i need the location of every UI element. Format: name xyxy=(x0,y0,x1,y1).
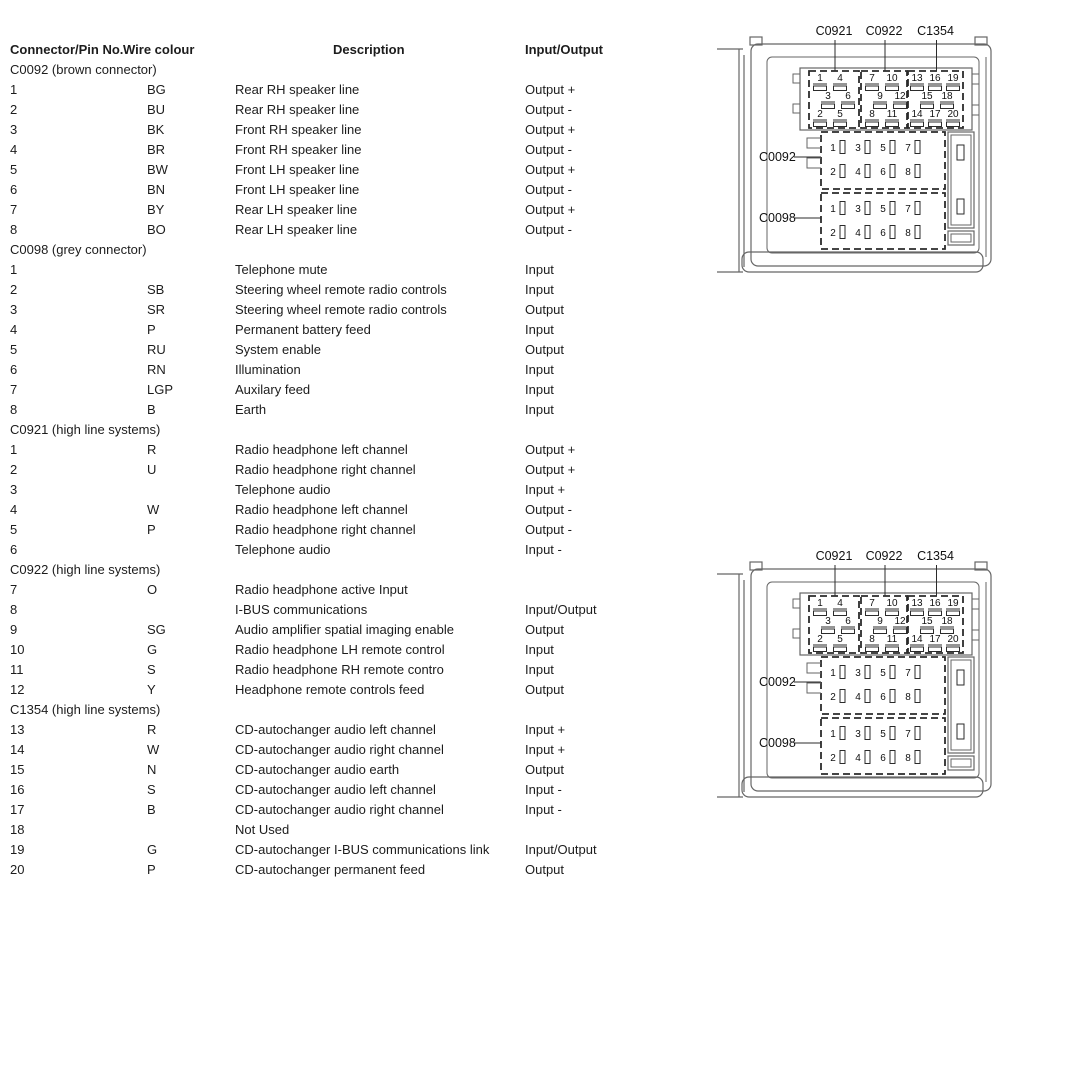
right-column-small-box-inner xyxy=(951,759,971,767)
wire-colour-cell: R xyxy=(147,440,156,460)
pin-number: 7 xyxy=(869,598,875,609)
description-cell: Front LH speaker line xyxy=(235,160,359,180)
input-output-cell: Input xyxy=(525,380,554,400)
pinout-table: Connector/Pin No.Wire colourDescriptionI… xyxy=(10,40,682,880)
pin-number: 5 xyxy=(880,143,886,154)
connector-label: C0092 xyxy=(759,675,796,689)
input-output-cell: Input xyxy=(525,400,554,420)
top-strip-left-notches xyxy=(793,74,800,113)
top-strip-left-notches xyxy=(793,599,800,638)
table-row: 6Telephone audioInput - xyxy=(10,540,682,560)
description-cell: CD-autochanger I-BUS communications link xyxy=(235,840,489,860)
connector-diagram-bottom: C0921143625C0922710912811C13541316191518… xyxy=(715,540,1079,812)
input-output-cell: Input - xyxy=(525,800,562,820)
input-output-cell: Output - xyxy=(525,500,572,520)
pin-number: 1 xyxy=(830,668,836,679)
description-cell: Telephone audio xyxy=(235,480,330,500)
description-cell: CD-autochanger audio right channel xyxy=(235,800,444,820)
pin-number: 6 xyxy=(880,167,886,178)
input-output-cell: Output xyxy=(525,860,564,880)
wire-colour-cell: BN xyxy=(147,180,165,200)
pin-slot xyxy=(840,202,845,215)
table-row: 9SGAudio amplifier spatial imaging enabl… xyxy=(10,620,682,640)
description-cell: Permanent battery feed xyxy=(235,320,371,340)
table-row: 16SCD-autochanger audio left channelInpu… xyxy=(10,780,682,800)
pin-slot xyxy=(834,611,847,616)
pin-number: 1 xyxy=(830,729,836,740)
input-output-cell: Output + xyxy=(525,440,575,460)
input-output-cell: Output xyxy=(525,300,564,320)
table-row: 13RCD-autochanger audio left channelInpu… xyxy=(10,720,682,740)
input-output-cell: Input + xyxy=(525,480,565,500)
connector-label: C0098 xyxy=(759,211,796,225)
input-output-cell: Output + xyxy=(525,460,575,480)
pin-slot xyxy=(865,202,870,215)
table-row: 19GCD-autochanger I-BUS communications l… xyxy=(10,840,682,860)
pin-number-cell: 2 xyxy=(10,460,17,480)
pin-number: 7 xyxy=(905,729,911,740)
wire-colour-cell: BK xyxy=(147,120,164,140)
table-row: 20PCD-autochanger permanent feedOutput xyxy=(10,860,682,880)
description-cell: Radio headphone right channel xyxy=(235,520,416,540)
pin-number-cell: 20 xyxy=(10,860,24,880)
pin-number: 17 xyxy=(929,634,941,645)
pin-slot xyxy=(894,629,907,634)
pin-number: 3 xyxy=(855,729,861,740)
description-cell: CD-autochanger permanent feed xyxy=(235,860,425,880)
pin-number: 18 xyxy=(941,91,953,102)
wire-colour-cell: U xyxy=(147,460,156,480)
pin-number-cell: 6 xyxy=(10,360,17,380)
pin-slot xyxy=(915,751,920,764)
table-header-row: Connector/Pin No.Wire colourDescriptionI… xyxy=(10,40,682,60)
pin-number: 9 xyxy=(877,91,883,102)
pin-slot xyxy=(890,727,895,740)
pin-slot xyxy=(865,690,870,703)
pin-number-cell: 6 xyxy=(10,180,17,200)
wire-colour-cell: P xyxy=(147,520,156,540)
pin-number: 6 xyxy=(880,753,886,764)
pin-number-cell: 2 xyxy=(10,280,17,300)
description-cell: Radio headphone RH remote contro xyxy=(235,660,444,680)
header-input-output: Input/Output xyxy=(525,40,603,60)
pin-number-cell: 17 xyxy=(10,800,24,820)
pin-slot xyxy=(842,629,855,634)
pin-slot xyxy=(890,226,895,239)
pin-number: 16 xyxy=(929,598,941,609)
pin-slot xyxy=(865,141,870,154)
pin-number: 7 xyxy=(905,204,911,215)
pin-slot xyxy=(840,165,845,178)
pin-slot xyxy=(834,122,847,127)
description-cell: Rear RH speaker line xyxy=(235,100,359,120)
pin-number: 14 xyxy=(911,634,923,645)
pin-slot xyxy=(886,86,899,91)
input-output-cell: Input - xyxy=(525,780,562,800)
description-cell: Rear LH speaker line xyxy=(235,220,357,240)
pin-slot xyxy=(915,165,920,178)
pin-number: 2 xyxy=(830,753,836,764)
pin-number: 3 xyxy=(855,204,861,215)
pin-number: 7 xyxy=(905,668,911,679)
wire-colour-cell: SG xyxy=(147,620,166,640)
pin-number: 20 xyxy=(947,109,959,120)
section-title-row: C0098 (grey connector) xyxy=(10,240,682,260)
pin-number: 14 xyxy=(911,109,923,120)
pin-slot xyxy=(915,202,920,215)
header-wire-colour: Wire colour xyxy=(123,40,194,60)
pin-number-cell: 1 xyxy=(10,440,17,460)
table-row: 3SRSteering wheel remote radio controlsO… xyxy=(10,300,682,320)
pin-slot xyxy=(911,647,924,652)
pin-number: 10 xyxy=(886,73,898,84)
description-cell: Radio headphone left channel xyxy=(235,500,408,520)
connector-label: C0098 xyxy=(759,736,796,750)
input-output-cell: Output - xyxy=(525,520,572,540)
table-row: 10GRadio headphone LH remote controlInpu… xyxy=(10,640,682,660)
table-row: 8BEarthInput xyxy=(10,400,682,420)
description-cell: Rear LH speaker line xyxy=(235,200,357,220)
description-cell: Front RH speaker line xyxy=(235,120,361,140)
pin-slot xyxy=(929,611,942,616)
pin-number: 8 xyxy=(869,634,875,645)
pin-number: 7 xyxy=(905,143,911,154)
pin-number-cell: 4 xyxy=(10,320,17,340)
pin-slot xyxy=(874,104,887,109)
pin-slot xyxy=(814,122,827,127)
table-row: 7ORadio headphone active Input xyxy=(10,580,682,600)
pin-number: 5 xyxy=(880,204,886,215)
pin-number: 10 xyxy=(886,598,898,609)
input-output-cell: Output - xyxy=(525,100,572,120)
description-cell: Steering wheel remote radio controls xyxy=(235,300,447,320)
pin-slot xyxy=(911,122,924,127)
pin-slot xyxy=(947,86,960,91)
pin-number-cell: 5 xyxy=(10,160,17,180)
pin-slot xyxy=(929,647,942,652)
input-output-cell: Input/Output xyxy=(525,600,597,620)
table-row: 17BCD-autochanger audio right channelInp… xyxy=(10,800,682,820)
pin-slot xyxy=(915,690,920,703)
table-row: 15NCD-autochanger audio earthOutput xyxy=(10,760,682,780)
wire-colour-cell: B xyxy=(147,400,156,420)
pin-number-cell: 14 xyxy=(10,740,24,760)
description-cell: I-BUS communications xyxy=(235,600,367,620)
description-cell: Radio headphone LH remote control xyxy=(235,640,445,660)
description-cell: Not Used xyxy=(235,820,289,840)
wire-colour-cell: BG xyxy=(147,80,166,100)
table-row: 1RRadio headphone left channelOutput + xyxy=(10,440,682,460)
chassis-bottom-strip xyxy=(742,252,983,272)
description-cell: Front LH speaker line xyxy=(235,180,359,200)
pin-number-cell: 15 xyxy=(10,760,24,780)
wire-colour-cell: LGP xyxy=(147,380,173,400)
wire-colour-cell: BY xyxy=(147,200,164,220)
pin-slot xyxy=(865,165,870,178)
table-row: 8I-BUS communicationsInput/Output xyxy=(10,600,682,620)
wire-colour-cell: G xyxy=(147,640,157,660)
pin-slot xyxy=(834,647,847,652)
pin-slot xyxy=(915,727,920,740)
pin-slot xyxy=(921,629,934,634)
description-cell: Earth xyxy=(235,400,266,420)
input-output-cell: Input xyxy=(525,280,554,300)
pin-number-cell: 8 xyxy=(10,600,17,620)
description-cell: CD-autochanger audio left channel xyxy=(235,780,436,800)
pin-slot xyxy=(840,751,845,764)
pin-number: 16 xyxy=(929,73,941,84)
pin-slot xyxy=(890,751,895,764)
pin-number: 3 xyxy=(825,91,831,102)
section-title-row: C0921 (high line systems) xyxy=(10,420,682,440)
table-row: 4BRFront RH speaker lineOutput - xyxy=(10,140,682,160)
pin-number: 4 xyxy=(855,228,861,239)
pin-number: 11 xyxy=(887,634,898,645)
pin-number: 5 xyxy=(837,109,843,120)
pin-number: 3 xyxy=(855,143,861,154)
wire-colour-cell: SB xyxy=(147,280,164,300)
input-output-cell: Input xyxy=(525,640,554,660)
pin-slot xyxy=(814,647,827,652)
pin-number: 2 xyxy=(817,109,823,120)
pin-slot xyxy=(929,122,942,127)
header-connector-pin: Connector/Pin No. xyxy=(10,40,123,60)
input-output-cell: Output xyxy=(525,620,564,640)
right-column-small-box xyxy=(948,756,974,770)
right-column-slot xyxy=(957,670,964,685)
wire-colour-cell: RN xyxy=(147,360,166,380)
pin-slot xyxy=(814,611,827,616)
pin-number-cell: 8 xyxy=(10,220,17,240)
wire-colour-cell: S xyxy=(147,780,156,800)
pin-number-cell: 5 xyxy=(10,520,17,540)
pin-slot xyxy=(890,141,895,154)
pin-number-cell: 12 xyxy=(10,680,24,700)
pin-number: 18 xyxy=(941,616,953,627)
section-title-row: C1354 (high line systems) xyxy=(10,700,682,720)
pin-number: 2 xyxy=(830,167,836,178)
right-column-slot xyxy=(957,199,964,214)
section-title-row: C0922 (high line systems) xyxy=(10,560,682,580)
pin-number: 6 xyxy=(880,228,886,239)
pin-number-cell: 7 xyxy=(10,580,17,600)
input-output-cell: Input + xyxy=(525,740,565,760)
pin-slot xyxy=(921,104,934,109)
pin-number-cell: 6 xyxy=(10,540,17,560)
connector-label: C0922 xyxy=(866,24,903,38)
pin-number: 6 xyxy=(845,91,851,102)
wire-colour-cell: RU xyxy=(147,340,166,360)
pin-slot xyxy=(840,666,845,679)
pin-slot xyxy=(890,165,895,178)
description-cell: CD-autochanger audio left channel xyxy=(235,720,436,740)
connector-label: C1354 xyxy=(917,549,954,563)
pin-number: 12 xyxy=(894,91,906,102)
input-output-cell: Input - xyxy=(525,540,562,560)
pin-number: 2 xyxy=(817,634,823,645)
pin-number: 19 xyxy=(947,598,959,609)
pin-slot xyxy=(865,751,870,764)
pin-slot xyxy=(866,647,879,652)
table-row: 18Not Used xyxy=(10,820,682,840)
pin-slot xyxy=(890,666,895,679)
pin-slot xyxy=(822,629,835,634)
description-cell: Audio amplifier spatial imaging enable xyxy=(235,620,454,640)
table-row: 1BGRear RH speaker lineOutput + xyxy=(10,80,682,100)
table-row: 6RNIlluminationInput xyxy=(10,360,682,380)
pin-number: 4 xyxy=(855,692,861,703)
wire-colour-cell: P xyxy=(147,320,156,340)
description-cell: Telephone mute xyxy=(235,260,328,280)
wire-colour-cell: G xyxy=(147,840,157,860)
table-row: 1Telephone muteInput xyxy=(10,260,682,280)
description-cell: Rear RH speaker line xyxy=(235,80,359,100)
wire-colour-cell: N xyxy=(147,760,156,780)
pin-slot xyxy=(947,647,960,652)
pin-number-cell: 1 xyxy=(10,80,17,100)
top-strip-right-notches xyxy=(972,599,979,640)
description-cell: Front RH speaker line xyxy=(235,140,361,160)
pin-slot xyxy=(886,122,899,127)
connector-diagram-top: C0921143625C0922710912811C13541316191518… xyxy=(715,15,1079,287)
pin-number: 1 xyxy=(830,204,836,215)
input-output-cell: Output + xyxy=(525,200,575,220)
pin-slot xyxy=(915,141,920,154)
table-row: 11SRadio headphone RH remote controInput xyxy=(10,660,682,680)
pin-number: 6 xyxy=(845,616,851,627)
pin-number: 3 xyxy=(825,616,831,627)
pin-slot xyxy=(915,226,920,239)
section-title-row: C0092 (brown connector) xyxy=(10,60,682,80)
table-row: 4PPermanent battery feedInput xyxy=(10,320,682,340)
input-output-cell: Output - xyxy=(525,140,572,160)
chassis-bottom-strip xyxy=(742,777,983,797)
pin-number: 8 xyxy=(905,228,911,239)
wire-colour-cell: W xyxy=(147,740,159,760)
description-cell: Illumination xyxy=(235,360,301,380)
table-row: 6BNFront LH speaker lineOutput - xyxy=(10,180,682,200)
section-title: C0098 (grey connector) xyxy=(10,240,147,260)
pin-slot xyxy=(840,226,845,239)
pin-number: 12 xyxy=(894,616,906,627)
pin-slot xyxy=(866,122,879,127)
pin-slot xyxy=(865,666,870,679)
input-output-cell: Output + xyxy=(525,120,575,140)
description-cell: Radio headphone active Input xyxy=(235,580,408,600)
header-description: Description xyxy=(333,40,405,60)
pin-number-cell: 13 xyxy=(10,720,24,740)
pin-number: 11 xyxy=(887,109,898,120)
description-cell: Steering wheel remote radio controls xyxy=(235,280,447,300)
description-cell: Headphone remote controls feed xyxy=(235,680,424,700)
pin-slot xyxy=(840,141,845,154)
input-output-cell: Output - xyxy=(525,220,572,240)
section-title: C0092 (brown connector) xyxy=(10,60,157,80)
section-title: C1354 (high line systems) xyxy=(10,700,160,720)
pin-number-cell: 4 xyxy=(10,500,17,520)
pin-slot xyxy=(866,611,879,616)
pin-slot xyxy=(947,122,960,127)
pin-slot xyxy=(947,611,960,616)
pin-slot xyxy=(915,666,920,679)
pin-number-cell: 7 xyxy=(10,380,17,400)
pin-number: 15 xyxy=(921,616,933,627)
pin-number-cell: 10 xyxy=(10,640,24,660)
table-row: 2SBSteering wheel remote radio controlsI… xyxy=(10,280,682,300)
description-cell: Auxilary feed xyxy=(235,380,310,400)
wire-colour-cell: W xyxy=(147,500,159,520)
pin-number: 15 xyxy=(921,91,933,102)
pin-number: 2 xyxy=(830,692,836,703)
wire-colour-cell: P xyxy=(147,860,156,880)
wire-colour-cell: BW xyxy=(147,160,168,180)
wire-colour-cell: R xyxy=(147,720,156,740)
pin-number: 13 xyxy=(911,73,923,84)
pin-slot xyxy=(886,647,899,652)
pin-slot xyxy=(814,86,827,91)
wire-colour-cell: BR xyxy=(147,140,165,160)
pin-slot xyxy=(874,629,887,634)
pin-slot xyxy=(941,629,954,634)
input-output-cell: Output xyxy=(525,760,564,780)
pin-number: 6 xyxy=(880,692,886,703)
pin-number: 8 xyxy=(869,109,875,120)
pin-number: 3 xyxy=(855,668,861,679)
description-cell: Radio headphone right channel xyxy=(235,460,416,480)
section-title: C0922 (high line systems) xyxy=(10,560,160,580)
table-row: 14WCD-autochanger audio right channelInp… xyxy=(10,740,682,760)
right-column-slot xyxy=(957,145,964,160)
pin-slot xyxy=(866,86,879,91)
connector-label: C1354 xyxy=(917,24,954,38)
wire-colour-cell: BO xyxy=(147,220,166,240)
table-row: 5PRadio headphone right channelOutput - xyxy=(10,520,682,540)
pin-slot xyxy=(941,104,954,109)
pin-number-cell: 3 xyxy=(10,300,17,320)
pin-number-cell: 3 xyxy=(10,120,17,140)
table-row: 2BURear RH speaker lineOutput - xyxy=(10,100,682,120)
pin-number-cell: 18 xyxy=(10,820,24,840)
pin-slot xyxy=(911,611,924,616)
right-column-small-box-inner xyxy=(951,234,971,242)
input-output-cell: Input/Output xyxy=(525,840,597,860)
description-cell: CD-autochanger audio earth xyxy=(235,760,399,780)
right-column-inner xyxy=(951,660,971,750)
wire-colour-cell: Y xyxy=(147,680,156,700)
input-output-cell: Input xyxy=(525,320,554,340)
input-output-cell: Output xyxy=(525,680,564,700)
pin-number-cell: 16 xyxy=(10,780,24,800)
pin-slot xyxy=(840,690,845,703)
table-row: 5RUSystem enableOutput xyxy=(10,340,682,360)
connector-left-notches xyxy=(807,138,821,168)
input-output-cell: Output - xyxy=(525,180,572,200)
description-cell: CD-autochanger audio right channel xyxy=(235,740,444,760)
description-cell: System enable xyxy=(235,340,321,360)
pin-slot xyxy=(840,727,845,740)
connector-left-notches xyxy=(807,663,821,693)
input-output-cell: Output xyxy=(525,340,564,360)
pin-slot xyxy=(865,226,870,239)
description-cell: Telephone audio xyxy=(235,540,330,560)
pin-number: 19 xyxy=(947,73,959,84)
input-output-cell: Output + xyxy=(525,160,575,180)
pin-number: 2 xyxy=(830,228,836,239)
pin-number-cell: 2 xyxy=(10,100,17,120)
pin-number-cell: 5 xyxy=(10,340,17,360)
pin-slot xyxy=(890,690,895,703)
pin-slot xyxy=(890,202,895,215)
